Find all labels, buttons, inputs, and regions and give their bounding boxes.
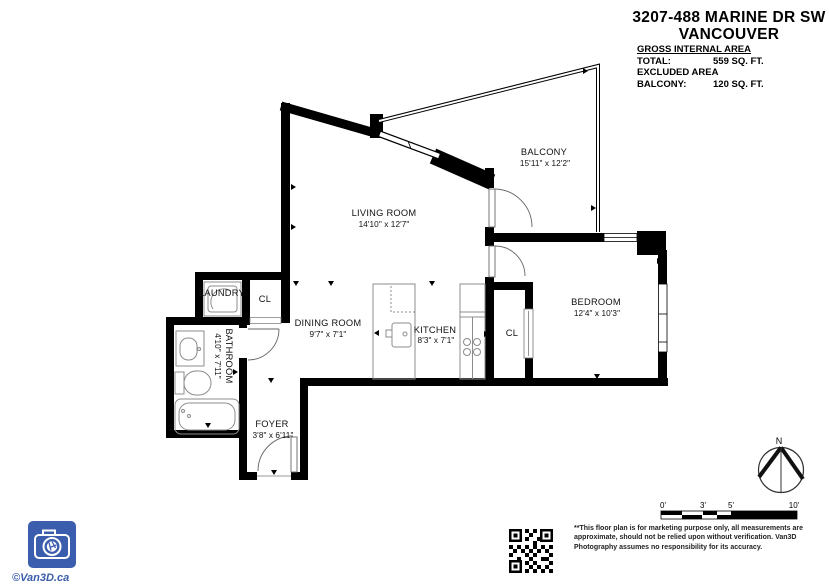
compass-north-label: N [776,436,783,446]
room-label-bedroom: BEDROOM [571,297,621,307]
disclaimer: **This floor plan is for marketing purpo… [574,524,804,552]
bedroom-door [489,246,525,277]
disclaimer-line-2: approximate, should not be relied upon w… [574,533,804,542]
room-label-kitchen: KITCHEN [414,325,457,335]
balcony-door [489,189,532,227]
dimension-ticks [205,68,662,475]
room-label-bathroom: BATHROOM [224,328,234,383]
room-label-laundry: LAUNDRY [199,288,245,298]
room-dims-kitchen: 8'3" x 7'1" [418,336,455,345]
qr-code [509,529,553,573]
disclaimer-line-1: **This floor plan is for marketing purpo… [574,524,804,533]
scale-bar: 0' 3' 5' 10' [660,501,800,519]
room-dims-foyer: 3'8" x 6'11" [253,431,294,440]
room-label-dining-room: DINING ROOM [295,318,362,328]
floor-plan-drawing: LIVING ROOM 14'10" x 12'7" BALCONY 15'11… [0,0,829,586]
scale-label-0: 0' [660,501,666,510]
room-label-bedroom-closet: CL [506,328,518,338]
scale-label-3: 3' [700,501,706,510]
logo-credit: ©Van3D.ca [12,572,69,584]
bathroom-door [248,329,279,360]
angled-window [380,134,439,156]
bathtub-icon [175,399,239,434]
room-labels: LIVING ROOM 14'10" x 12'7" BALCONY 15'11… [199,147,621,440]
room-dims-bathroom: 4'10" x 7'11" [213,333,222,379]
room-label-foyer: FOYER [255,419,288,429]
kitchen-counter [460,284,485,379]
room-dims-bedroom: 12'4" x 10'3" [574,309,620,318]
floor-plan-page: 3207-488 MARINE DR SW VANCOUVER GROSS IN… [0,0,829,586]
toilet-icon [175,371,211,395]
scale-label-5: 5' [728,501,734,510]
room-label-hall-closet: CL [259,294,271,304]
bathroom-sink-icon [176,331,204,366]
room-label-balcony: BALCONY [521,147,567,157]
room-dims-balcony: 15'11" x 12'2" [520,159,570,168]
compass: N [759,436,804,493]
disclaimer-line-3: Photography assumes no responsibility fo… [574,543,804,552]
room-label-living-room: LIVING ROOM [352,208,417,218]
hall-closet-bifold [250,318,281,324]
kitchen-island [373,284,415,379]
room-dims-living-room: 14'10" x 12'7" [359,220,410,229]
scale-label-10: 10' [789,501,800,510]
kitchen-sink-icon [392,323,411,347]
room-dims-dining-room: 9'7" x 7'1" [310,330,347,339]
closet-sliding-door [524,309,533,358]
van3d-logo [28,521,76,568]
